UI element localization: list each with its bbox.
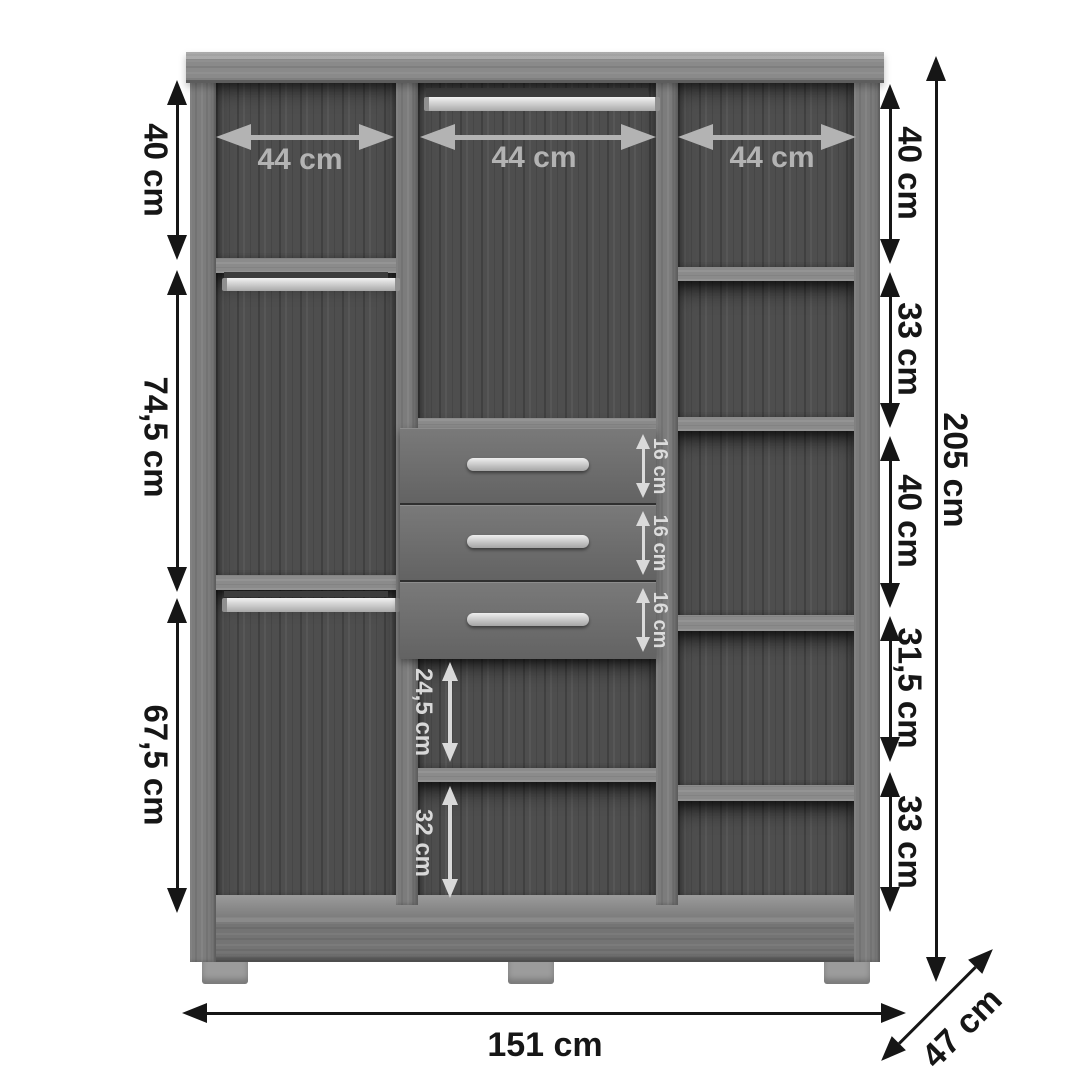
left-side-panel [190,78,216,962]
dim-label-right-0: 40 cm [894,126,927,220]
drawer-unit [400,428,656,658]
compartment-right-4 [678,631,854,785]
hanging-rod-left-1 [222,278,400,291]
compartment-left-middle [216,273,396,575]
shelf-right-3 [678,615,854,631]
compartment-right-2 [678,281,854,417]
dim-label-top-2: 44 cm [729,143,814,173]
drawer-3-handle [467,613,589,626]
foot-right [824,962,870,984]
rod-bracket-middle-top [426,88,648,97]
shelf-right-2 [678,417,854,431]
shelf-left-1 [216,258,396,273]
shelf-right-4 [678,785,854,801]
dim-label-right-4: 33 cm [894,795,927,889]
dim-label-drawer-2: 16 cm [650,592,670,649]
wardrobe-dimension-diagram: 40 cm 74,5 cm 67,5 cm 40 cm 33 cm 40 cm … [0,0,1088,1087]
dim-arrow-total-width [182,1002,906,1024]
dim-label-left-0: 40 cm [140,123,173,217]
compartment-right-5 [678,801,854,895]
dim-label-total-width: 151 cm [487,1028,602,1062]
dim-label-top-0: 44 cm [257,145,342,175]
right-side-panel [854,78,880,962]
foot-center [508,962,554,984]
rod-bracket-left-2 [224,591,388,597]
top-panel [186,52,884,83]
dim-label-left-1: 74,5 cm [140,376,173,497]
dim-label-drawer-0: 16 cm [650,438,670,495]
hanging-rod-left-2 [222,598,400,612]
dim-label-middle-lower-1: 32 cm [411,809,435,877]
compartment-right-3 [678,431,854,615]
shelf-middle-lower [418,768,656,782]
dim-arrow-middle-lower-1 [441,786,459,898]
dim-label-right-3: 31,5 cm [894,627,927,748]
dim-label-total-height: 205 cm [938,412,972,527]
shelf-left-2 [216,575,396,590]
dim-label-left-2: 67,5 cm [140,704,173,825]
drawer-2 [400,505,656,580]
dim-label-middle-lower-0: 24,5 cm [411,668,435,756]
interior-floor [216,895,854,917]
drawer-1 [400,428,656,503]
dim-label-drawer-1: 16 cm [650,515,670,572]
dim-arrow-middle-lower-0 [441,662,459,762]
foot-left [202,962,248,984]
dim-label-top-1: 44 cm [491,143,576,173]
hanging-rod-middle-top [424,97,660,111]
plinth [190,917,880,962]
drawer-2-handle [467,535,589,548]
compartment-left-bottom [216,590,396,895]
shelf-right-1 [678,267,854,281]
dim-label-right-1: 33 cm [894,302,927,396]
drawer-1-handle [467,458,589,471]
dim-label-right-2: 40 cm [894,474,927,568]
drawer-3 [400,582,656,659]
